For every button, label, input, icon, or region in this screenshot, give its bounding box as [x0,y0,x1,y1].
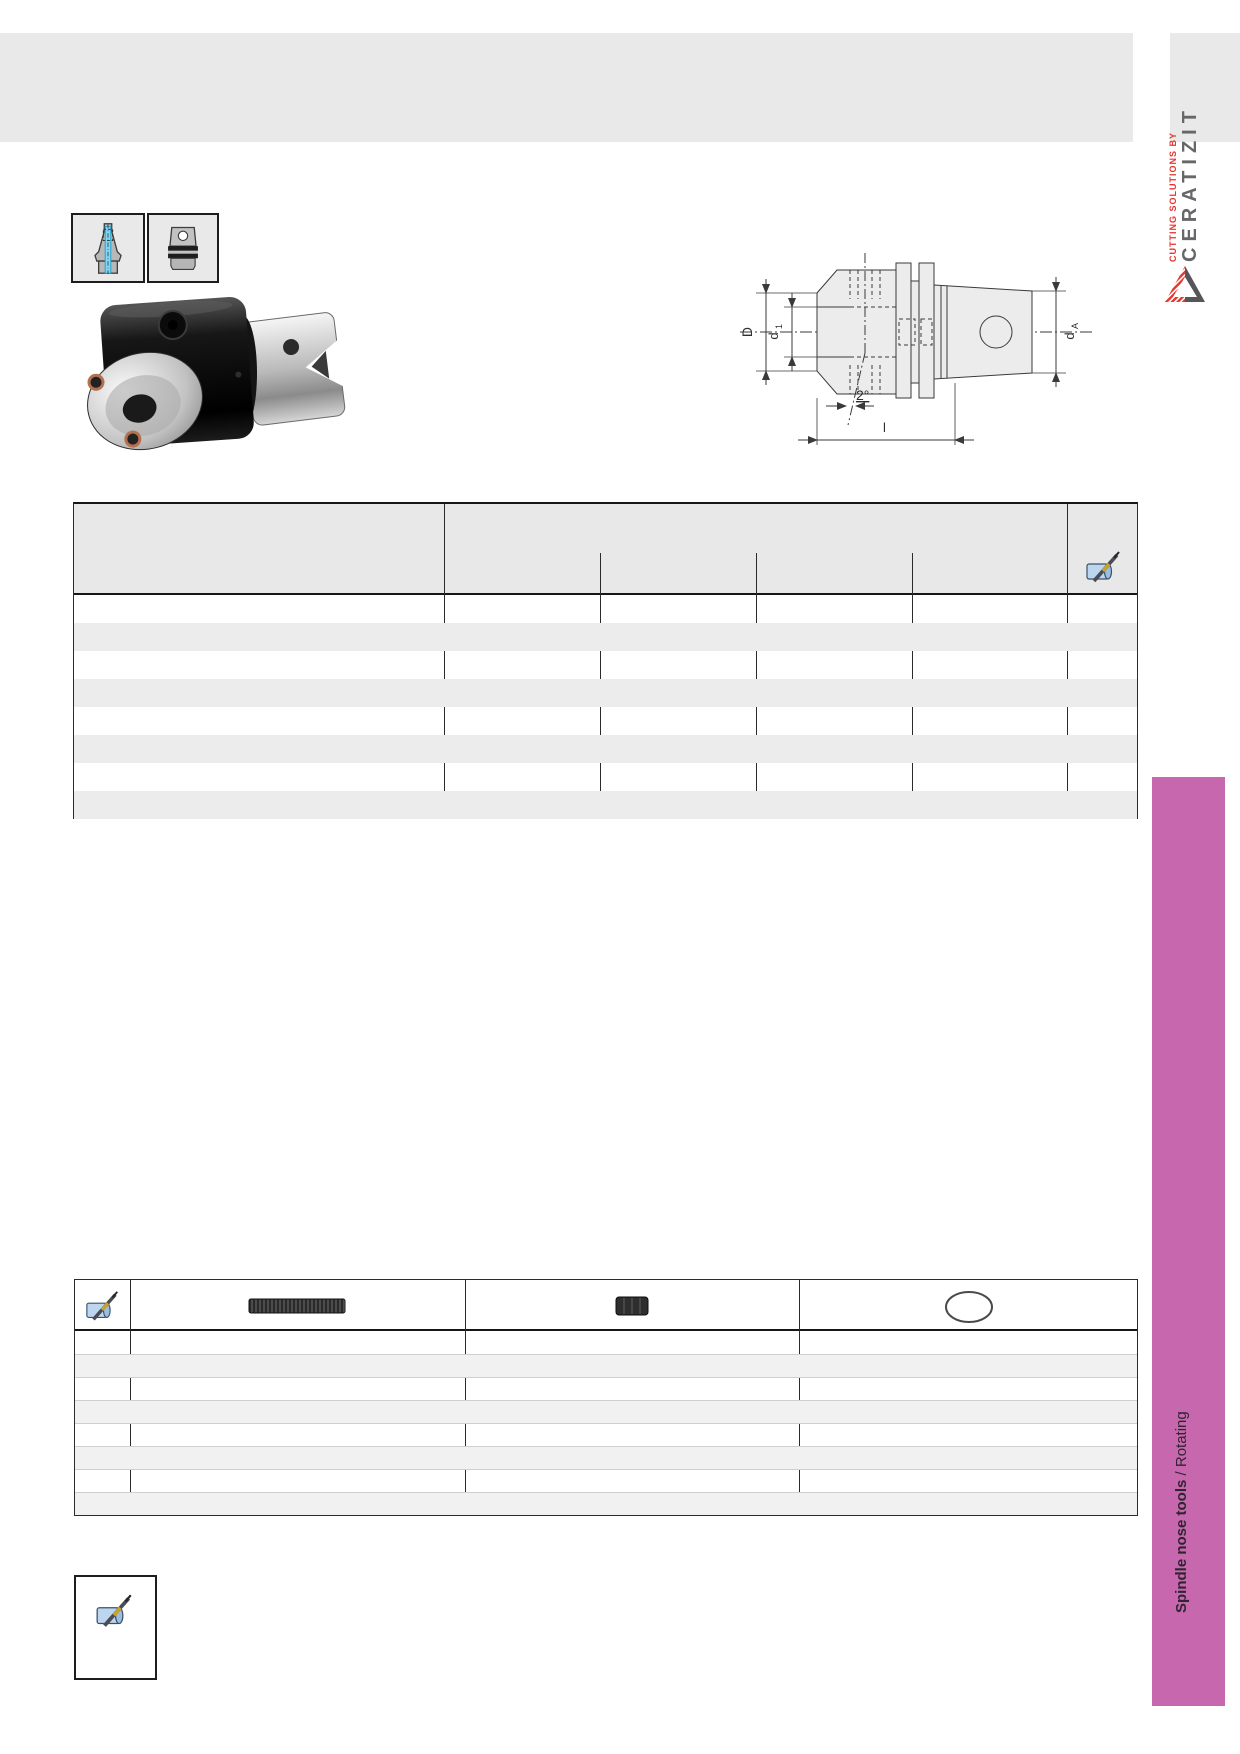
table-row [74,707,1137,735]
table-row [75,1331,1137,1354]
chapter-title: Spindle nose tools [1173,1480,1190,1613]
table-row [75,1492,1137,1515]
table-row [75,1446,1137,1469]
tool-assembly-icon [94,1591,136,1633]
accessories-table [74,1279,1138,1516]
table-row [74,651,1137,679]
brand-name: CERATIZIT [1179,52,1202,262]
dim-label-d1: d [766,332,781,339]
technical-drawing: D d 1 d A 2° l [700,233,1095,451]
dim-label-angle: 2° [856,387,869,403]
dim-label-length: l [883,420,886,435]
dim-label-d1-sub: 1 [774,324,784,329]
tool-assembly-icon [84,1288,122,1326]
table-row [74,735,1137,763]
table-row [75,1423,1137,1446]
brand-tagline: CUTTING SOLUTIONS BY [1168,52,1178,262]
dimensions-table [73,502,1138,819]
table-row [75,1400,1137,1423]
table-row [75,1354,1137,1377]
dim-label-D: D [739,327,755,337]
brand-logo: CUTTING SOLUTIONS BY CERATIZIT [1168,52,1202,262]
product-photo [70,293,360,465]
o-ring-image [943,1289,995,1325]
table-row [75,1469,1137,1492]
note-box [74,1575,157,1680]
chapter-sidebar-label: Spindle nose tools / Rotating [1173,1193,1190,1613]
table-row [75,1377,1137,1400]
spindle-adapter-icon [155,218,211,278]
table-row [74,679,1137,707]
dim-label-dA-sub: A [1070,323,1080,329]
type-icon-box-taper [71,213,145,283]
dim-label-dA: d [1062,332,1077,339]
table-row [74,791,1137,819]
catalog-page: CUTTING SOLUTIONS BY CERATIZIT [0,0,1240,1754]
table-row [74,763,1137,791]
table-row [74,623,1137,651]
set-screw-image [615,1296,649,1316]
taper-shank-tool-icon [80,218,136,278]
threaded-stud-image [247,1298,347,1314]
chapter-subtitle: / Rotating [1173,1411,1190,1479]
brand-triangle-icon [1163,264,1207,304]
type-icon-box-adapter [147,213,219,283]
tool-assembly-icon [1084,548,1124,588]
dimensions-table-header [74,504,1137,595]
table-row [74,595,1137,623]
header-band [0,33,1133,142]
